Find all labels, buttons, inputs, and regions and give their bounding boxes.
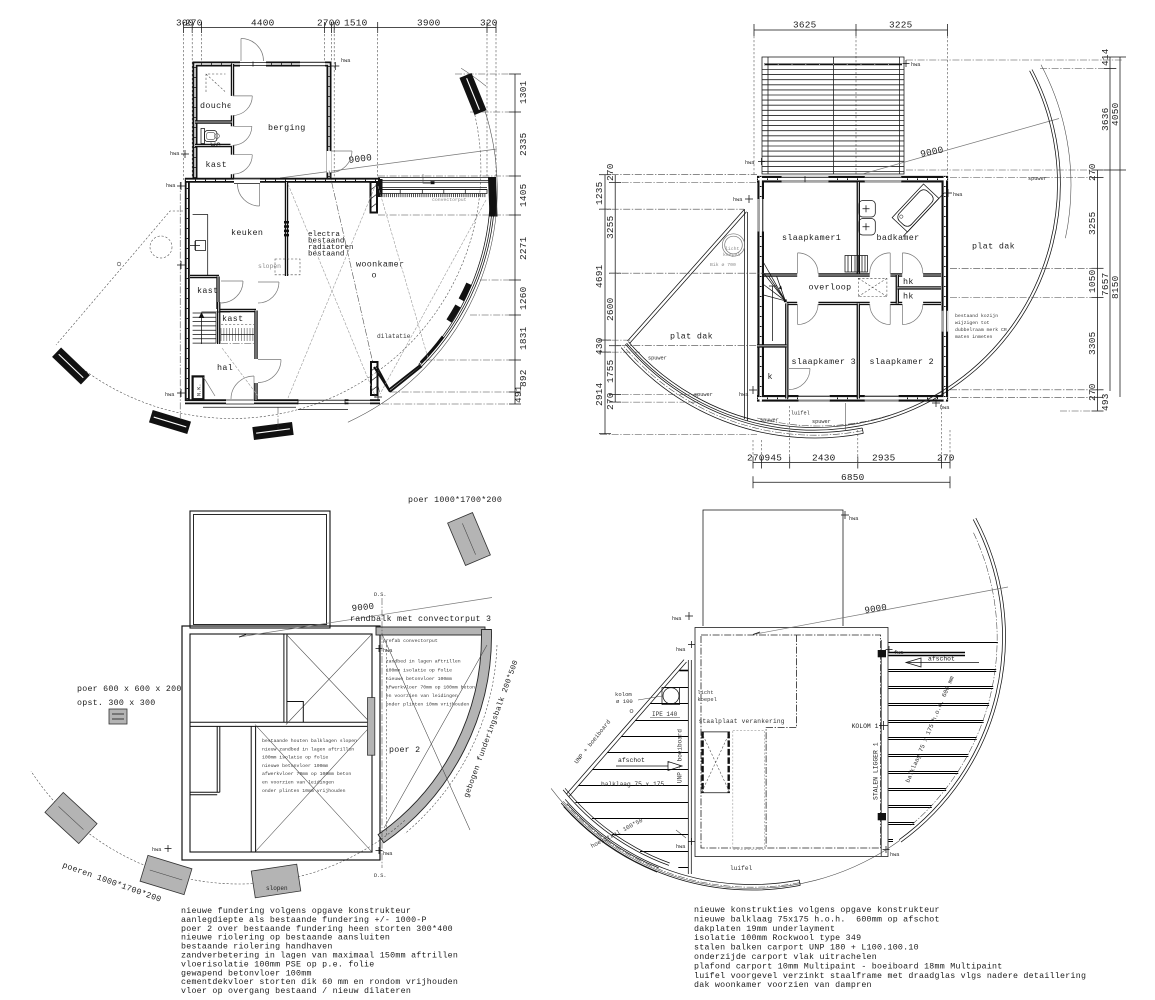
svg-text:hwa: hwa	[166, 183, 175, 189]
svg-text:493: 493	[1100, 393, 1111, 411]
svg-text:wijzigen tot: wijzigen tot	[955, 320, 990, 326]
svg-text:nieuwe konstrukties volgens op: nieuwe konstrukties volgens opgave konst…	[694, 905, 940, 915]
svg-text:opst. 300 x 300: opst. 300 x 300	[77, 699, 155, 708]
svg-text:slaapkamer 3: slaapkamer 3	[792, 357, 857, 367]
svg-text:plat dak: plat dak	[972, 242, 1015, 252]
svg-text:vloerisolatie 100mm PSE op p.e: vloerisolatie 100mm PSE op p.e. folie	[181, 959, 374, 969]
svg-text:hwa: hwa	[745, 160, 754, 166]
svg-text:woonkamer: woonkamer	[356, 260, 404, 270]
svg-text:bestaand: bestaand	[308, 251, 344, 259]
svg-text:slaapkamer 2: slaapkamer 2	[870, 357, 935, 367]
svg-text:D.S.: D.S.	[374, 873, 386, 879]
svg-text:2430: 2430	[812, 453, 836, 464]
svg-text:kolom: kolom	[615, 691, 632, 698]
svg-text:prefab convectorput: prefab convectorput	[383, 638, 438, 644]
svg-text:2914: 2914	[594, 382, 605, 406]
svg-text:270: 270	[937, 453, 955, 464]
svg-text:onder plinten 10mm vrijhouden: onder plinten 10mm vrijhouden	[386, 702, 470, 708]
svg-text:douche: douche	[200, 101, 232, 111]
svg-text:hwa: hwa	[911, 62, 920, 68]
svg-text:zandbed in lagen aftrillen: zandbed in lagen aftrillen	[386, 659, 461, 665]
svg-text:1510: 1510	[344, 18, 368, 29]
svg-text:2335: 2335	[518, 132, 529, 156]
svg-text:N.K.: N.K.	[197, 384, 203, 396]
svg-text:randbalk met convectorput 3: randbalk met convectorput 3	[350, 614, 491, 624]
svg-text:afwerkvloer 70mm op 100mm beto: afwerkvloer 70mm op 100mm beton	[262, 771, 351, 777]
svg-text:hk: hk	[903, 277, 914, 287]
svg-text:staalplaat verankering: staalplaat verankering	[699, 718, 785, 725]
svg-text:poer 2 over bestaande funderin: poer 2 over bestaande fundering heen sto…	[181, 924, 453, 934]
svg-text:poer 1000*1700*200: poer 1000*1700*200	[408, 495, 502, 505]
svg-text:hwa: hwa	[676, 647, 685, 653]
svg-text:270: 270	[1087, 383, 1098, 401]
svg-text:1831: 1831	[518, 326, 529, 350]
svg-text:badkamer: badkamer	[877, 233, 920, 243]
svg-text:D.S.: D.S.	[374, 592, 386, 598]
svg-text:berging: berging	[268, 123, 306, 133]
svg-text:hk: hk	[903, 292, 914, 302]
svg-text:3900: 3900	[417, 18, 441, 29]
svg-text:spuwer: spuwer	[812, 419, 831, 425]
svg-text:hwa: hwa	[953, 192, 962, 198]
svg-text:hwa: hwa	[152, 847, 161, 853]
svg-text:hwa: hwa	[940, 405, 949, 411]
svg-text:spuwer: spuwer	[694, 392, 713, 398]
svg-text:en voorzien van leidingen: en voorzien van leidingen	[386, 693, 458, 699]
svg-text:945: 945	[765, 453, 783, 464]
svg-text:dak woonkamer voorzien van dam: dak woonkamer voorzien van dampren	[694, 980, 872, 990]
svg-text:bestaand kozijn: bestaand kozijn	[955, 313, 998, 319]
svg-text:100mm isolatie op folie: 100mm isolatie op folie	[386, 667, 452, 673]
svg-text:balklaag 75 x 175: balklaag 75 x 175	[601, 781, 664, 788]
svg-text:1050: 1050	[1087, 269, 1098, 293]
svg-text:onder plinten 10mm vrijhouden: onder plinten 10mm vrijhouden	[262, 788, 346, 794]
svg-text:491: 491	[513, 385, 524, 403]
svg-text:hwa: hwa	[165, 392, 174, 398]
svg-text:4691: 4691	[594, 264, 605, 288]
svg-text:270: 270	[605, 392, 616, 410]
svg-text:kast: kast	[222, 314, 244, 324]
svg-text:3305: 3305	[1087, 331, 1098, 355]
svg-text:plafond carport 10mm Multipain: plafond carport 10mm Multipaint - boeibo…	[694, 961, 1003, 971]
svg-text:spuwer: spuwer	[1028, 176, 1047, 182]
svg-text:hwa: hwa	[890, 852, 899, 858]
svg-text:2271: 2271	[518, 236, 529, 260]
svg-text:270: 270	[185, 18, 203, 29]
svg-text:6850: 6850	[841, 472, 865, 483]
svg-text:UNP + boeiboard: UNP + boeiboard	[677, 729, 684, 783]
svg-text:2700: 2700	[317, 18, 341, 29]
svg-text:hwa: hwa	[849, 516, 858, 522]
svg-text:hwa: hwa	[383, 648, 392, 654]
svg-text:3255: 3255	[605, 215, 616, 239]
svg-text:3225: 3225	[889, 20, 913, 31]
svg-text:aanlegdiepte als bestaande fun: aanlegdiepte als bestaande fundering +/-…	[181, 915, 427, 925]
svg-text:maten inmeten: maten inmeten	[955, 334, 993, 340]
svg-text:gewapend betonvloer 100mm: gewapend betonvloer 100mm	[181, 968, 312, 978]
svg-text:8150: 8150	[1110, 275, 1121, 299]
svg-text:ø 100: ø 100	[616, 698, 633, 705]
svg-text:hwa: hwa	[341, 58, 350, 64]
svg-text:spuwer: spuwer	[760, 418, 779, 424]
svg-text:kast: kast	[197, 286, 219, 296]
svg-text:zandverbetering in lagen van m: zandverbetering in lagen van maximaal 15…	[181, 951, 458, 961]
svg-text:o: o	[372, 271, 377, 281]
svg-text:bestaande houten balklagen slo: bestaande houten balklagen slopen	[262, 738, 357, 744]
svg-text:hwa: hwa	[170, 151, 179, 157]
svg-text:vloer op overgang bestaand / n: vloer op overgang bestaand / nieuw dilat…	[181, 986, 411, 996]
svg-text:STALEN LIGGER 1: STALEN LIGGER 1	[873, 742, 880, 800]
svg-text:3255: 3255	[1087, 211, 1098, 235]
svg-text:slaapkamer1: slaapkamer1	[782, 233, 841, 243]
svg-text:100mm isolatie op folie: 100mm isolatie op folie	[262, 755, 328, 761]
svg-text:poer 600 x 600 x 200: poer 600 x 600 x 200	[77, 685, 182, 694]
svg-text:cementdekvloer storten dik 60: cementdekvloer storten dik 60 mm en rond…	[181, 977, 458, 987]
svg-text:kast: kast	[206, 160, 228, 170]
svg-text:4400: 4400	[251, 18, 275, 29]
svg-text:hwa: hwa	[739, 392, 748, 398]
svg-text:isolatie 100mm Rockwool type 3: isolatie 100mm Rockwool type 349	[694, 933, 861, 943]
svg-text:1755: 1755	[605, 359, 616, 383]
svg-text:slopen: slopen	[266, 885, 288, 892]
svg-text:270: 270	[747, 453, 765, 464]
svg-text:Bik ø 700: Bik ø 700	[710, 262, 736, 268]
svg-text:afschot: afschot	[618, 757, 645, 764]
svg-text:2600: 2600	[605, 297, 616, 321]
svg-text:nieuwe fundering volgens opgav: nieuwe fundering volgens opgave konstruk…	[181, 906, 411, 916]
svg-text:dakplaten 19mm underlayment: dakplaten 19mm underlayment	[694, 924, 835, 934]
svg-text:poer 2: poer 2	[389, 746, 420, 755]
svg-text:hal: hal	[217, 363, 233, 373]
svg-text:luifel voorgevel verzinkt staa: luifel voorgevel verzinkt staalframe met…	[694, 971, 1086, 981]
svg-text:convectorput: convectorput	[432, 197, 467, 203]
svg-text:nieuw zandbed in lagen aftrill: nieuw zandbed in lagen aftrillen	[262, 746, 354, 752]
svg-text:bestaande riolering handhaven: bestaande riolering handhaven	[181, 942, 333, 952]
svg-text:licht: licht	[697, 690, 713, 696]
svg-text:hwa: hwa	[672, 616, 681, 622]
svg-text:koepel: koepel	[697, 697, 716, 703]
svg-text:onderzijde carport vlak uitrac: onderzijde carport vlak uitrachelen	[694, 952, 877, 962]
svg-text:dilatatie: dilatatie	[377, 333, 411, 340]
svg-text:270: 270	[605, 163, 616, 181]
svg-text:luifel: luifel	[730, 865, 753, 872]
svg-text:afschot: afschot	[928, 656, 955, 663]
svg-text:270: 270	[1087, 163, 1098, 181]
svg-text:hwa: hwa	[383, 851, 392, 857]
svg-text:3625: 3625	[793, 20, 817, 31]
svg-text:nieuwe balklaag 75x175 h.o.h.: nieuwe balklaag 75x175 h.o.h. 600mm op a…	[694, 914, 940, 924]
svg-text:dubbelraam merk CR: dubbelraam merk CR	[955, 327, 1007, 333]
svg-text:luifel: luifel	[791, 411, 810, 417]
svg-text:koepel: koepel	[723, 252, 740, 258]
svg-text:1405: 1405	[518, 183, 529, 207]
svg-text:hwa: hwa	[733, 197, 742, 203]
svg-text:spuwer: spuwer	[648, 356, 667, 362]
svg-text:plat dak: plat dak	[670, 332, 713, 342]
svg-text:4050: 4050	[1110, 102, 1121, 126]
svg-text:414: 414	[1100, 48, 1111, 66]
svg-text:1301: 1301	[518, 80, 529, 104]
svg-text:1260: 1260	[518, 286, 529, 310]
svg-text:overloop: overloop	[809, 283, 852, 293]
svg-text:nieuwe betonvloer 100mm: nieuwe betonvloer 100mm	[262, 763, 328, 769]
svg-text:1235: 1235	[594, 181, 605, 205]
svg-text:IPE 140: IPE 140	[652, 711, 678, 718]
svg-text:en voorzien van leidingen: en voorzien van leidingen	[262, 780, 334, 786]
svg-text:licht: licht	[725, 246, 740, 252]
svg-text:892: 892	[518, 369, 529, 387]
svg-text:keuken: keuken	[231, 228, 263, 238]
svg-text:nieuwe betonvloer 100mm: nieuwe betonvloer 100mm	[386, 676, 452, 682]
svg-text:320: 320	[480, 18, 498, 29]
svg-text:fwa: fwa	[894, 650, 903, 656]
svg-text:2935: 2935	[872, 453, 896, 464]
svg-text:nieuwe riolering op bestaande: nieuwe riolering op bestaande aansluiten	[181, 933, 390, 943]
svg-text:stalen balken carport UNP 180: stalen balken carport UNP 180 + L100.100…	[694, 943, 919, 953]
svg-text:slopen: slopen	[258, 263, 281, 270]
svg-text:KOLOM 1: KOLOM 1	[852, 723, 879, 730]
svg-text:k: k	[768, 372, 773, 382]
svg-text:hwa: hwa	[676, 844, 685, 850]
